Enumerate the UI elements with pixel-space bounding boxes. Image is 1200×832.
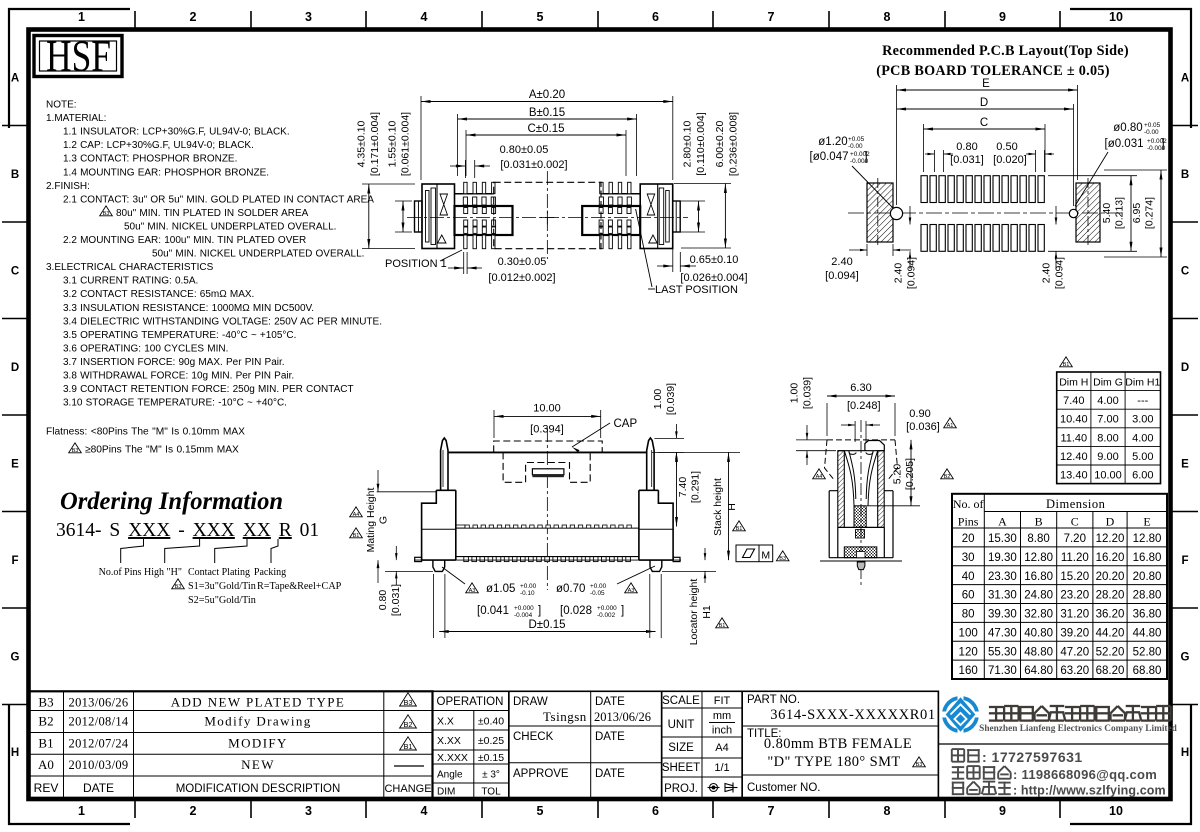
svg-text:3.8 WITHDRAWAL FORCE: 10g MIN: 3.8 WITHDRAWAL FORCE: 10g MIN. Per PIN P… [63,371,294,382]
svg-text:F: F [1181,555,1188,567]
svg-text:28.80: 28.80 [1133,590,1162,602]
svg-text:3.ELECTRICAL CHARACTERISTICS: 3.ELECTRICAL CHARACTERISTICS [46,262,214,273]
svg-text:B2: B2 [38,714,53,729]
svg-text:TOL: TOL [481,787,501,798]
svg-text:H: H [1181,747,1189,759]
svg-text:C: C [980,117,988,129]
svg-text:80u" MIN. TIN PLATED IN SOLDER: 80u" MIN. TIN PLATED IN SOLDER AREA [116,208,309,219]
svg-text:[0.031±0.002]: [0.031±0.002] [500,159,567,171]
svg-text:6: 6 [652,804,659,818]
svg-text:High "H": High "H" [144,567,182,578]
svg-text:"D" TYPE 180° SMT: "D" TYPE 180° SMT [767,754,900,770]
svg-text:Customer NO.: Customer NO. [747,782,821,794]
svg-text:B3: B3 [403,698,412,707]
svg-text:0.65±0.10: 0.65±0.10 [690,254,739,266]
svg-text:[0.026±0.004]: [0.026±0.004] [680,272,747,284]
svg-text:≥80Pins The "M" Is 0.15mm: ≥80Pins The "M" Is 0.15mm MAX [85,445,239,456]
svg-text:2.1 CONTACT: 3u" OR 5u" MIN.: 2.1 CONTACT: 3u" OR 5u" MIN. GOLD PLATED… [63,194,374,205]
svg-text:[0.031]: [0.031] [390,584,402,616]
svg-text:3.3 INSULATION RESISTANCE: 10: 3.3 INSULATION RESISTANCE: 1000MΩ MIN DC… [63,303,314,314]
svg-text:ø0.70: ø0.70 [556,583,585,595]
svg-text:No.of Pins: No.of Pins [99,567,142,578]
svg-text:B3: B3 [38,694,53,709]
svg-text:A: A [1181,72,1189,84]
svg-text:[0.012±0.002]: [0.012±0.002] [488,272,555,284]
svg-text:Locator height: Locator height [688,579,700,646]
svg-text:-0.002: -0.002 [597,612,616,619]
svg-text:B3: B3 [72,448,79,454]
svg-text:FIT: FIT [714,695,731,707]
svg-text:9: 9 [999,804,1006,818]
svg-text:Recommended P.C.B Layout(Top S: Recommended P.C.B Layout(Top Side) [882,43,1129,59]
svg-text:B: B [1181,169,1189,181]
svg-text:10.00: 10.00 [1094,470,1122,482]
svg-text:[0.061±0.004]: [0.061±0.004] [400,112,412,176]
svg-text:3.2 CONTACT RESISTANCE: 65mΩ: 3.2 CONTACT RESISTANCE: 65mΩ MAX. [63,289,254,300]
svg-text:[ø0.047: [ø0.047 [810,151,849,163]
svg-text:52.80: 52.80 [1133,646,1162,658]
svg-text:[0.020]: [0.020] [993,154,1027,166]
svg-text:8: 8 [884,804,891,818]
svg-text:B1: B1 [1063,362,1070,368]
svg-text:1: 1 [78,10,85,24]
svg-text:6.00: 6.00 [1132,470,1153,482]
svg-text:1.MATERIAL:: 1.MATERIAL: [46,113,106,124]
svg-text:2: 2 [190,10,197,24]
svg-text:30: 30 [962,552,975,564]
svg-text:D±0.15: D±0.15 [529,619,566,631]
svg-text:1.55±0.10: 1.55±0.10 [387,121,399,168]
svg-text:4.35±0.10: 4.35±0.10 [356,121,368,168]
svg-text:inch: inch [712,725,732,737]
svg-text:7: 7 [768,804,775,818]
svg-text:47.30: 47.30 [988,627,1017,639]
svg-text:H: H [726,503,738,511]
svg-text:2013/06/26: 2013/06/26 [69,695,129,709]
svg-text:4.00: 4.00 [1132,432,1153,444]
svg-text:B1: B1 [403,742,412,751]
svg-text:R=Tape&Reel+CAP: R=Tape&Reel+CAP [257,581,342,592]
svg-text:39.30: 39.30 [988,609,1017,621]
svg-text:2.40: 2.40 [1041,263,1053,284]
svg-text:D: D [11,362,19,374]
svg-text:2.40: 2.40 [893,263,905,284]
svg-text:Packing: Packing [254,567,286,578]
svg-text:LAST POSITION: LAST POSITION [655,284,738,296]
svg-text:4: 4 [421,804,428,818]
svg-text:10: 10 [1109,804,1123,818]
svg-text:6.00±0.20: 6.00±0.20 [714,121,726,168]
svg-text:DATE: DATE [595,768,625,780]
svg-text:24.80: 24.80 [1024,590,1053,602]
svg-text:A3: A3 [628,588,635,594]
svg-text:Stack height: Stack height [712,478,724,536]
svg-text:3.7 INSERTION FORCE: 90g MAX.: 3.7 INSERTION FORCE: 90g MAX. Per PIN Pa… [63,357,285,368]
svg-text:3: 3 [305,10,312,24]
svg-text:[0.094]: [0.094] [906,257,918,289]
svg-text:---: --- [1137,395,1148,407]
svg-text:68.20: 68.20 [1096,665,1125,677]
svg-text:39.20: 39.20 [1060,627,1089,639]
svg-text:E: E [1143,515,1150,529]
svg-text:8.00: 8.00 [1097,432,1118,444]
svg-text:DIM: DIM [437,787,455,798]
svg-text:8.80: 8.80 [1027,533,1049,545]
svg-text:3.00: 3.00 [1132,414,1153,426]
svg-text:[0.110±0.004]: [0.110±0.004] [695,112,707,175]
svg-text:-0.10: -0.10 [520,590,535,597]
svg-text:A: A [11,72,19,84]
svg-text:: 17727597631: : 17727597631 [982,749,1083,765]
svg-text:B: B [1035,515,1043,529]
svg-text:2013/06/26: 2013/06/26 [594,710,651,724]
svg-text:[0.394]: [0.394] [530,424,564,436]
svg-text:6.95: 6.95 [1131,203,1143,224]
svg-text:PROJ.: PROJ. [664,783,698,795]
svg-text:Dim G: Dim G [1093,377,1123,389]
svg-text:7.20: 7.20 [1064,533,1086,545]
svg-text:-0.00: -0.00 [1144,129,1159,136]
svg-text:REV: REV [34,781,59,795]
svg-text:UNIT: UNIT [668,719,695,731]
svg-text:Angle: Angle [437,770,463,781]
svg-text:C: C [11,265,19,277]
svg-text:31.30: 31.30 [988,590,1017,602]
svg-text:-0.004: -0.004 [514,612,533,619]
svg-text:NEW: NEW [241,757,275,772]
svg-text:12.80: 12.80 [1024,552,1053,564]
svg-text:B±0.15: B±0.15 [529,107,565,119]
svg-text:X.XXX: X.XXX [437,752,468,764]
svg-text:15.30: 15.30 [988,533,1017,545]
svg-text:23.20: 23.20 [1060,590,1089,602]
svg-text:0.80: 0.80 [377,590,389,611]
svg-text:S2=5u"Gold/Tin: S2=5u"Gold/Tin [188,595,256,606]
svg-text:DATE: DATE [595,696,625,708]
svg-text:B3: B3 [779,556,786,562]
svg-text:[0.036]: [0.036] [906,421,940,433]
svg-text:[0.205]: [0.205] [904,458,916,490]
svg-text:E: E [982,78,990,90]
svg-text:100: 100 [959,627,978,639]
svg-text:[0.041: [0.041 [477,605,509,617]
svg-text:M: M [761,550,770,562]
svg-text:[0.236±0.008]: [0.236±0.008] [728,112,740,176]
svg-text:0.30±0.05: 0.30±0.05 [498,256,547,268]
svg-text:[0.213]: [0.213] [1114,197,1126,229]
svg-text:2.80±0.10: 2.80±0.10 [682,121,694,168]
svg-text:]: ] [1161,138,1164,150]
svg-text:A4: A4 [816,474,823,480]
svg-text:[0.291]: [0.291] [690,471,702,503]
svg-text:3.9 CONTACT RETENTION FORCE:: 3.9 CONTACT RETENTION FORCE: 250g MIN. P… [63,384,354,395]
svg-text:1.1 INSULATOR: LCP+30%G.F, UL: 1.1 INSULATOR: LCP+30%G.F, UL94V-0; BLAC… [63,127,290,138]
svg-text:MODIFICATION DESCRIPTION: MODIFICATION DESCRIPTION [176,783,341,795]
svg-text:0.80mm BTB FEMALE: 0.80mm BTB FEMALE [764,736,912,752]
svg-text:20.80: 20.80 [1133,571,1162,583]
svg-text:9: 9 [999,10,1006,24]
svg-text:3.10 STORAGE TEMPERATURE: -10°: 3.10 STORAGE TEMPERATURE: -10°C ~ +40°C. [63,398,287,409]
svg-text:28.20: 28.20 [1096,590,1125,602]
svg-text:B1: B1 [353,533,360,539]
svg-text:: 1198668096@qq.com: : 1198668096@qq.com [1013,767,1157,782]
svg-text:16.80: 16.80 [1133,552,1162,564]
svg-text:2.40: 2.40 [831,256,852,268]
svg-text:44.20: 44.20 [1096,627,1125,639]
svg-text:36.20: 36.20 [1096,609,1125,621]
svg-text:3.5 OPERATING TEMPERATURE: -4: 3.5 OPERATING TEMPERATURE: -40°C ~ +105°… [63,330,296,341]
svg-text:6: 6 [652,10,659,24]
svg-text:7.40: 7.40 [1063,395,1084,407]
svg-text:G: G [11,651,20,663]
svg-text:DATE: DATE [595,731,625,743]
svg-text:12.40: 12.40 [1060,451,1088,463]
svg-text:X.X: X.X [437,715,454,727]
svg-text:0.50: 0.50 [996,141,1017,153]
svg-text:19.30: 19.30 [988,552,1017,564]
svg-text:HSF: HSF [46,32,111,81]
svg-text:40.80: 40.80 [1024,627,1053,639]
svg-text:S1=3u"Gold/Tin: S1=3u"Gold/Tin [188,581,256,592]
svg-text:[0.171±0.004]: [0.171±0.004] [369,112,381,176]
svg-text:C±0.15: C±0.15 [528,123,565,135]
svg-text:POSITION 1: POSITION 1 [385,258,447,270]
svg-text:CHECK: CHECK [513,731,554,743]
svg-text:(PCB BOARD TOLERANCE ± 0.05): (PCB BOARD TOLERANCE ± 0.05) [876,63,1110,79]
svg-text:-0.00: -0.00 [848,143,863,150]
svg-text:1.00: 1.00 [652,389,664,410]
svg-text:PART NO.: PART NO. [747,694,800,706]
svg-text:± 3°: ± 3° [482,770,500,781]
svg-text:A4: A4 [715,742,728,754]
svg-text:3614- S XXX - XXX XX R 01: 3614- S XXX - XXX XX R 01 [56,520,319,541]
svg-text:13.40: 13.40 [1060,470,1088,482]
svg-text:OPERATION: OPERATION [437,696,504,708]
svg-text:C: C [1181,265,1189,277]
svg-text:20.20: 20.20 [1096,571,1125,583]
svg-text:A4: A4 [353,512,360,518]
svg-text:1.4 MOUNTING EAR: PHOSPHOR BR: 1.4 MOUNTING EAR: PHOSPHOR BRONZE. [63,167,269,178]
svg-text:mm: mm [713,710,731,722]
svg-text:1.3 CONTACT: PHOSPHOR BRONZE.: 1.3 CONTACT: PHOSPHOR BRONZE. [63,154,237,165]
svg-text:1/1: 1/1 [714,762,729,774]
svg-text:32.80: 32.80 [1024,609,1053,621]
svg-text:DRAW: DRAW [513,696,548,708]
svg-text:[0.039]: [0.039] [802,377,814,409]
svg-text:B1: B1 [719,623,726,629]
svg-text:5: 5 [537,804,544,818]
svg-text:7.00: 7.00 [1097,414,1118,426]
svg-text:Dim H1: Dim H1 [1125,377,1160,389]
svg-text:7.40: 7.40 [677,477,689,498]
svg-text:7: 7 [768,10,775,24]
svg-text:5.40: 5.40 [1101,203,1113,224]
svg-text:4.00: 4.00 [1097,395,1118,407]
svg-text:Contact Plating: Contact Plating [188,567,250,578]
svg-text:±0.15: ±0.15 [478,752,504,764]
svg-text:9.00: 9.00 [1097,451,1118,463]
svg-text:Mating Height: Mating Height [365,488,377,553]
svg-text:15.20: 15.20 [1060,571,1089,583]
svg-text:Flatness: <80Pins The "M": Flatness: <80Pins The "M" Is 0.10mm MAX [46,427,245,438]
svg-text:SCALE: SCALE [662,695,700,707]
svg-text:5: 5 [537,10,544,24]
svg-text:H1: H1 [701,605,713,619]
svg-text:0.90: 0.90 [909,408,930,420]
svg-text:Dimension: Dimension [1046,497,1106,511]
svg-text:10.00: 10.00 [533,403,561,415]
svg-text:40: 40 [962,571,975,583]
svg-text:[0.274]: [0.274] [1144,197,1156,229]
svg-text:12.80: 12.80 [1133,533,1162,545]
svg-text:G: G [1181,651,1190,663]
svg-text:8: 8 [884,10,891,24]
svg-text:16.20: 16.20 [1096,552,1125,564]
svg-text:ø1.05: ø1.05 [486,583,515,595]
svg-text:-0.05: -0.05 [590,590,605,597]
svg-text:B: B [11,169,19,181]
svg-text:B3: B3 [175,584,182,590]
svg-text:[ø0.031: [ø0.031 [1105,138,1144,150]
svg-text:]: ] [538,605,541,617]
svg-text:10.40: 10.40 [1060,414,1088,426]
svg-text:12.20: 12.20 [1096,533,1125,545]
svg-text:DATE: DATE [83,781,114,795]
svg-text:B3: B3 [103,211,110,217]
svg-text:NOTE:: NOTE: [46,100,77,111]
svg-text:No. of: No. of [953,497,984,511]
svg-text:2.2 MOUNTING EAR: 100u" MIN.: 2.2 MOUNTING EAR: 100u" MIN. TIN PLATED … [63,235,306,246]
svg-text:2012/08/14: 2012/08/14 [69,715,129,729]
svg-text:50u" MIN. NICKEL UNDERPLATED O: 50u" MIN. NICKEL UNDERPLATED OVERALL. [124,221,336,232]
svg-text:2: 2 [190,804,197,818]
svg-text:5.00: 5.00 [1132,451,1153,463]
svg-text:3.4 DIELECTRIC WITHSTANDING V: 3.4 DIELECTRIC WITHSTANDING VOLTAGE: 250… [63,316,382,327]
svg-text:80: 80 [962,609,975,621]
svg-text:]: ] [621,605,624,617]
svg-text:[0.094]: [0.094] [825,270,859,282]
svg-text:0.80: 0.80 [956,141,977,153]
svg-text:2010/03/09: 2010/03/09 [69,758,129,772]
svg-text:16.80: 16.80 [1024,571,1053,583]
svg-text:A: A [998,515,1007,529]
svg-text:B1: B1 [736,526,743,532]
svg-text:11.20: 11.20 [1061,552,1089,564]
svg-text:Shenzhen Lianfeng Electronics: Shenzhen Lianfeng Electronics Company Li… [979,724,1177,734]
svg-text:1: 1 [78,804,85,818]
svg-text:F: F [11,555,18,567]
svg-text:68.80: 68.80 [1133,665,1162,677]
svg-text:B3: B3 [916,762,923,768]
svg-text:64.80: 64.80 [1024,665,1053,677]
svg-text:48.80: 48.80 [1024,646,1053,658]
svg-text:1.00: 1.00 [789,383,801,404]
svg-text:31.20: 31.20 [1060,609,1089,621]
svg-text:B2: B2 [944,474,951,480]
svg-text:ø0.80: ø0.80 [1113,122,1142,134]
svg-text:50u" MIN. NICKEL UNDERPLATED O: 50u" MIN. NICKEL UNDERPLATED OVERALL. [152,249,364,260]
svg-text:1.2 CAP: LCP+30%G.F, UL94V-0;: 1.2 CAP: LCP+30%G.F, UL94V-0; BLACK. [63,140,254,151]
svg-text:55.30: 55.30 [988,646,1017,658]
svg-text:3: 3 [305,804,312,818]
svg-text:A1: A1 [947,423,954,429]
svg-text:160: 160 [959,665,978,677]
svg-text:C: C [1071,515,1079,529]
svg-text:A3: A3 [469,588,476,594]
svg-text:4: 4 [421,10,428,24]
svg-text:CAP: CAP [614,418,638,430]
svg-text:A0: A0 [38,757,54,772]
svg-text:3.6 OPERATING: 100 CYCLES MIN: 3.6 OPERATING: 100 CYCLES MIN. [63,343,228,354]
svg-text:36.80: 36.80 [1133,609,1162,621]
svg-text:3.1 CURRENT RATING: 0.5A.: 3.1 CURRENT RATING: 0.5A. [63,276,198,287]
svg-text:44.80: 44.80 [1133,627,1162,639]
svg-text:63.20: 63.20 [1060,665,1089,677]
svg-text:±0.25: ±0.25 [478,735,504,747]
svg-text:120: 120 [959,646,978,658]
svg-text:2.FINISH:: 2.FINISH: [46,181,90,192]
svg-text:[0.039]: [0.039] [665,383,677,415]
svg-text:B1: B1 [38,736,53,751]
svg-text:52.20: 52.20 [1096,646,1125,658]
svg-text:SIZE: SIZE [668,742,694,754]
svg-text:[0.031]: [0.031] [950,154,984,166]
svg-text:A±0.20: A±0.20 [529,89,565,101]
svg-text:ADD NEW PLATED TYPE: ADD NEW PLATED TYPE [171,694,346,709]
svg-text:D: D [980,97,988,109]
svg-text:6.30: 6.30 [850,382,871,394]
svg-text:]: ] [864,151,867,163]
svg-text:Ordering Information: Ordering Information [60,488,283,515]
svg-text:SHEET: SHEET [662,762,700,774]
svg-text:23.30: 23.30 [988,571,1017,583]
svg-text:Modify Drawing: Modify Drawing [204,714,311,729]
svg-text:[0.094]: [0.094] [1054,257,1066,289]
svg-text:60: 60 [962,590,975,602]
svg-text:CHANGE: CHANGE [384,783,431,795]
svg-text:20: 20 [962,533,975,545]
svg-text:5.20: 5.20 [892,464,904,485]
svg-text:Dim H: Dim H [1059,377,1088,389]
svg-text:E: E [11,458,19,470]
svg-text:G: G [378,516,390,524]
svg-text:X.XX: X.XX [437,735,461,747]
svg-text:10: 10 [1109,10,1123,24]
svg-text:2012/07/24: 2012/07/24 [69,737,129,751]
svg-text:3614-SXXX-XXXXXR01: 3614-SXXX-XXXXXR01 [770,707,935,723]
svg-text:E: E [1181,458,1189,470]
svg-text:±0.40: ±0.40 [478,715,504,727]
svg-text:D: D [1106,515,1115,529]
svg-text:47.20: 47.20 [1060,646,1089,658]
svg-text:ø1.20: ø1.20 [818,136,847,148]
svg-text:D: D [1181,362,1189,374]
svg-text:MODIFY: MODIFY [228,736,288,751]
svg-text:APPROVE: APPROVE [513,768,569,780]
svg-text:: http://www.szlfying.com: : http://www.szlfying.com [1013,784,1166,798]
svg-text:Tsingsn: Tsingsn [543,709,587,724]
svg-text:0.80±0.05: 0.80±0.05 [500,144,549,156]
svg-text:B2: B2 [403,720,412,729]
svg-text:Pins: Pins [958,515,979,529]
svg-text:[0.248]: [0.248] [847,400,881,412]
svg-text:71.30: 71.30 [988,665,1017,677]
svg-text:[0.028: [0.028 [560,605,592,617]
svg-text:H: H [11,747,19,759]
svg-text:11.40: 11.40 [1060,432,1087,444]
